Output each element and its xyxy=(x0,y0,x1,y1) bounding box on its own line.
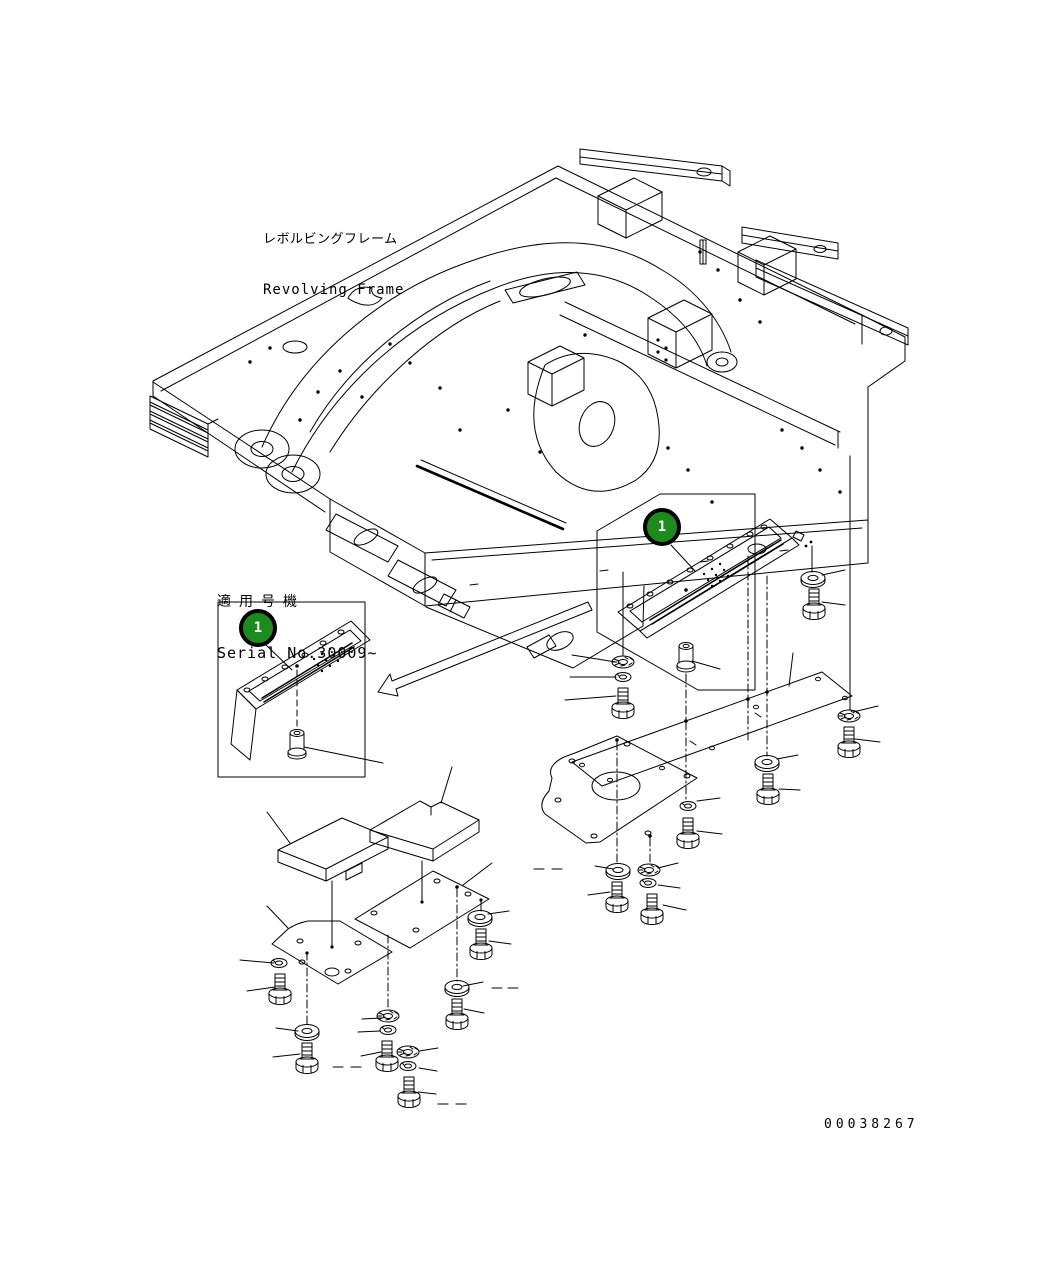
washer-small xyxy=(400,1062,416,1071)
lock-washer xyxy=(377,1010,399,1022)
leader-long-plate xyxy=(789,653,793,686)
bolt xyxy=(757,774,779,805)
washer-small xyxy=(640,879,656,888)
washer xyxy=(445,981,469,997)
pad-left xyxy=(267,812,388,881)
diagram-canvas: レボルビングフレーム Revolving Frame 適用号機 Serial N… xyxy=(0,0,1055,1284)
washer-small xyxy=(615,673,631,682)
washer-small xyxy=(380,1026,396,1035)
bolt xyxy=(269,974,291,1005)
detail-box-right xyxy=(597,494,812,690)
leader-pad-left xyxy=(267,812,290,843)
frame-label-jp: レボルビングフレーム xyxy=(263,231,404,248)
lock-washer xyxy=(638,864,660,876)
leader-thin-plate-left xyxy=(267,906,288,928)
hole-cover-plate xyxy=(542,736,697,843)
part-balloon-right[interactable]: 1 xyxy=(643,508,681,546)
bolt xyxy=(803,589,825,620)
bolt xyxy=(398,1077,420,1108)
part-balloon-right-number: 1 xyxy=(658,519,666,535)
part-balloon-left[interactable]: 1 xyxy=(239,609,277,647)
washer xyxy=(468,911,492,927)
pad-right xyxy=(370,767,479,861)
bolt xyxy=(446,999,468,1030)
under-cover-plates xyxy=(267,653,852,984)
bolt xyxy=(838,727,860,758)
bolt xyxy=(606,882,628,913)
under-cover-right-detail xyxy=(618,519,812,672)
leader-thin-plate-right xyxy=(463,863,492,885)
washer-small xyxy=(680,802,696,811)
bolt xyxy=(612,688,634,719)
serial-label-jp: 適用号機 xyxy=(217,594,378,611)
part-balloon-left-number: 1 xyxy=(254,620,262,636)
leader-balloon-right xyxy=(671,545,695,571)
long-cover-plate xyxy=(572,653,852,786)
washer xyxy=(801,572,825,588)
frame-label: レボルビングフレーム Revolving Frame xyxy=(263,197,404,316)
bolt xyxy=(296,1043,318,1074)
leader-sleeve-left xyxy=(304,747,383,763)
lock-washer xyxy=(397,1046,419,1058)
sleeve-spacer-right xyxy=(677,643,695,673)
lock-washer xyxy=(838,710,860,722)
direction-arrow xyxy=(378,602,592,696)
washer xyxy=(606,864,630,880)
leader-sleeve-right xyxy=(692,661,720,669)
frame-label-en: Revolving Frame xyxy=(263,282,404,299)
bolt xyxy=(376,1041,398,1072)
thin-plate-left xyxy=(267,906,392,984)
drawing-number: 00038267 xyxy=(824,1116,919,1133)
thin-plate-right xyxy=(355,863,492,948)
sleeve-spacer-left xyxy=(288,730,306,760)
leader-pad-right xyxy=(441,767,452,803)
washer xyxy=(295,1025,319,1041)
washer xyxy=(755,756,779,772)
bolt xyxy=(470,929,492,960)
parts-drawing-svg xyxy=(0,0,1055,1284)
bolt xyxy=(677,818,699,849)
serial-label-en: Serial No.30009~ xyxy=(217,645,378,662)
bolt xyxy=(641,894,663,925)
